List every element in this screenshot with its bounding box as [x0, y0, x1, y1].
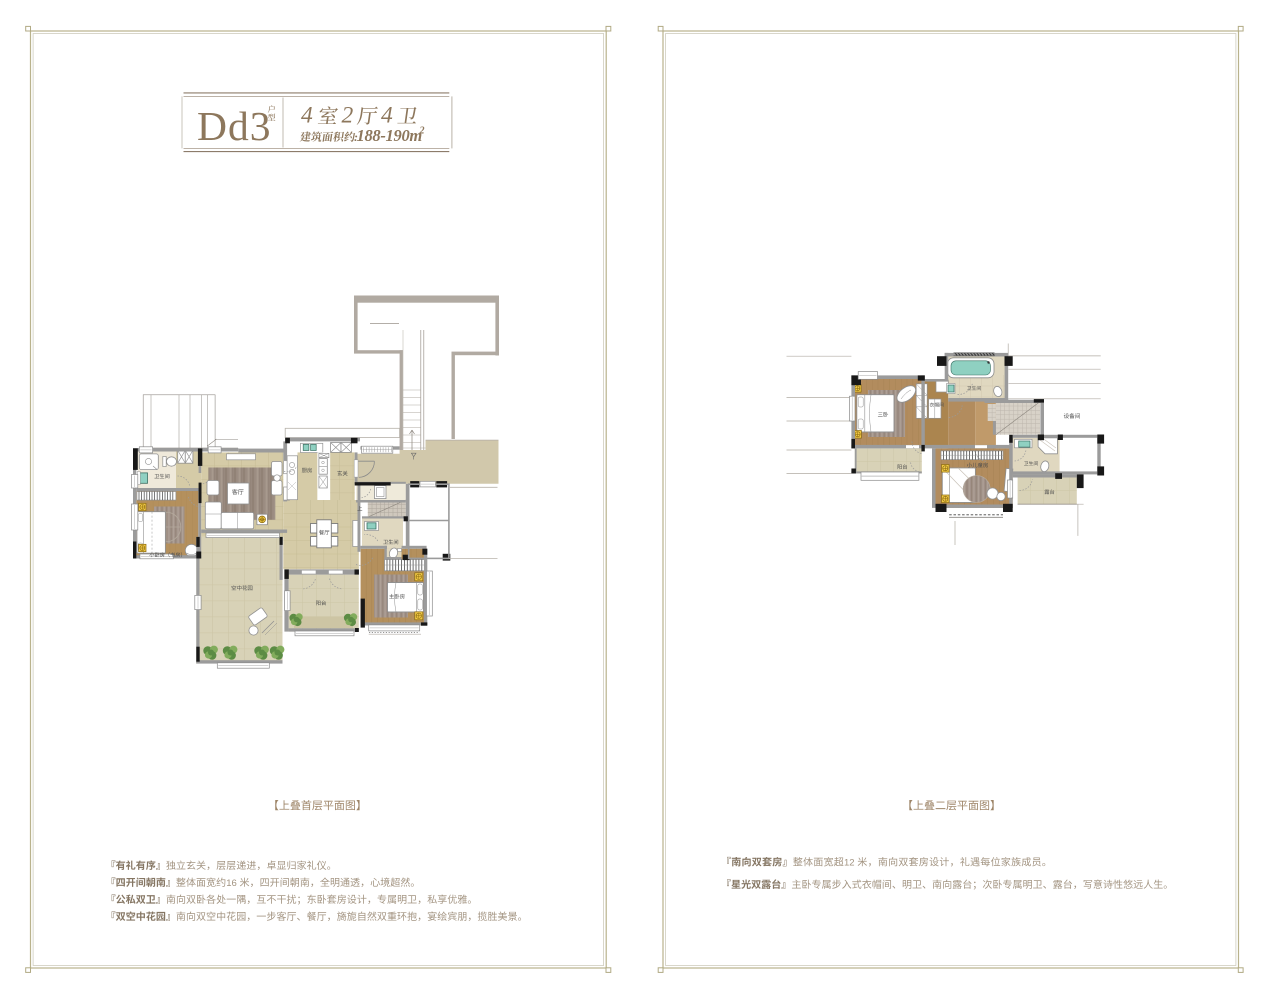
svg-text:188-190m: 188-190m: [357, 126, 423, 145]
svg-text:2: 2: [419, 126, 425, 137]
svg-text:4: 4: [301, 103, 313, 129]
svg-text:Dd3: Dd3: [197, 103, 271, 149]
svg-text:2: 2: [342, 103, 354, 129]
svg-text:12: 12: [844, 858, 855, 869]
svg-text:16: 16: [226, 878, 237, 889]
svg-text:4: 4: [381, 103, 393, 129]
